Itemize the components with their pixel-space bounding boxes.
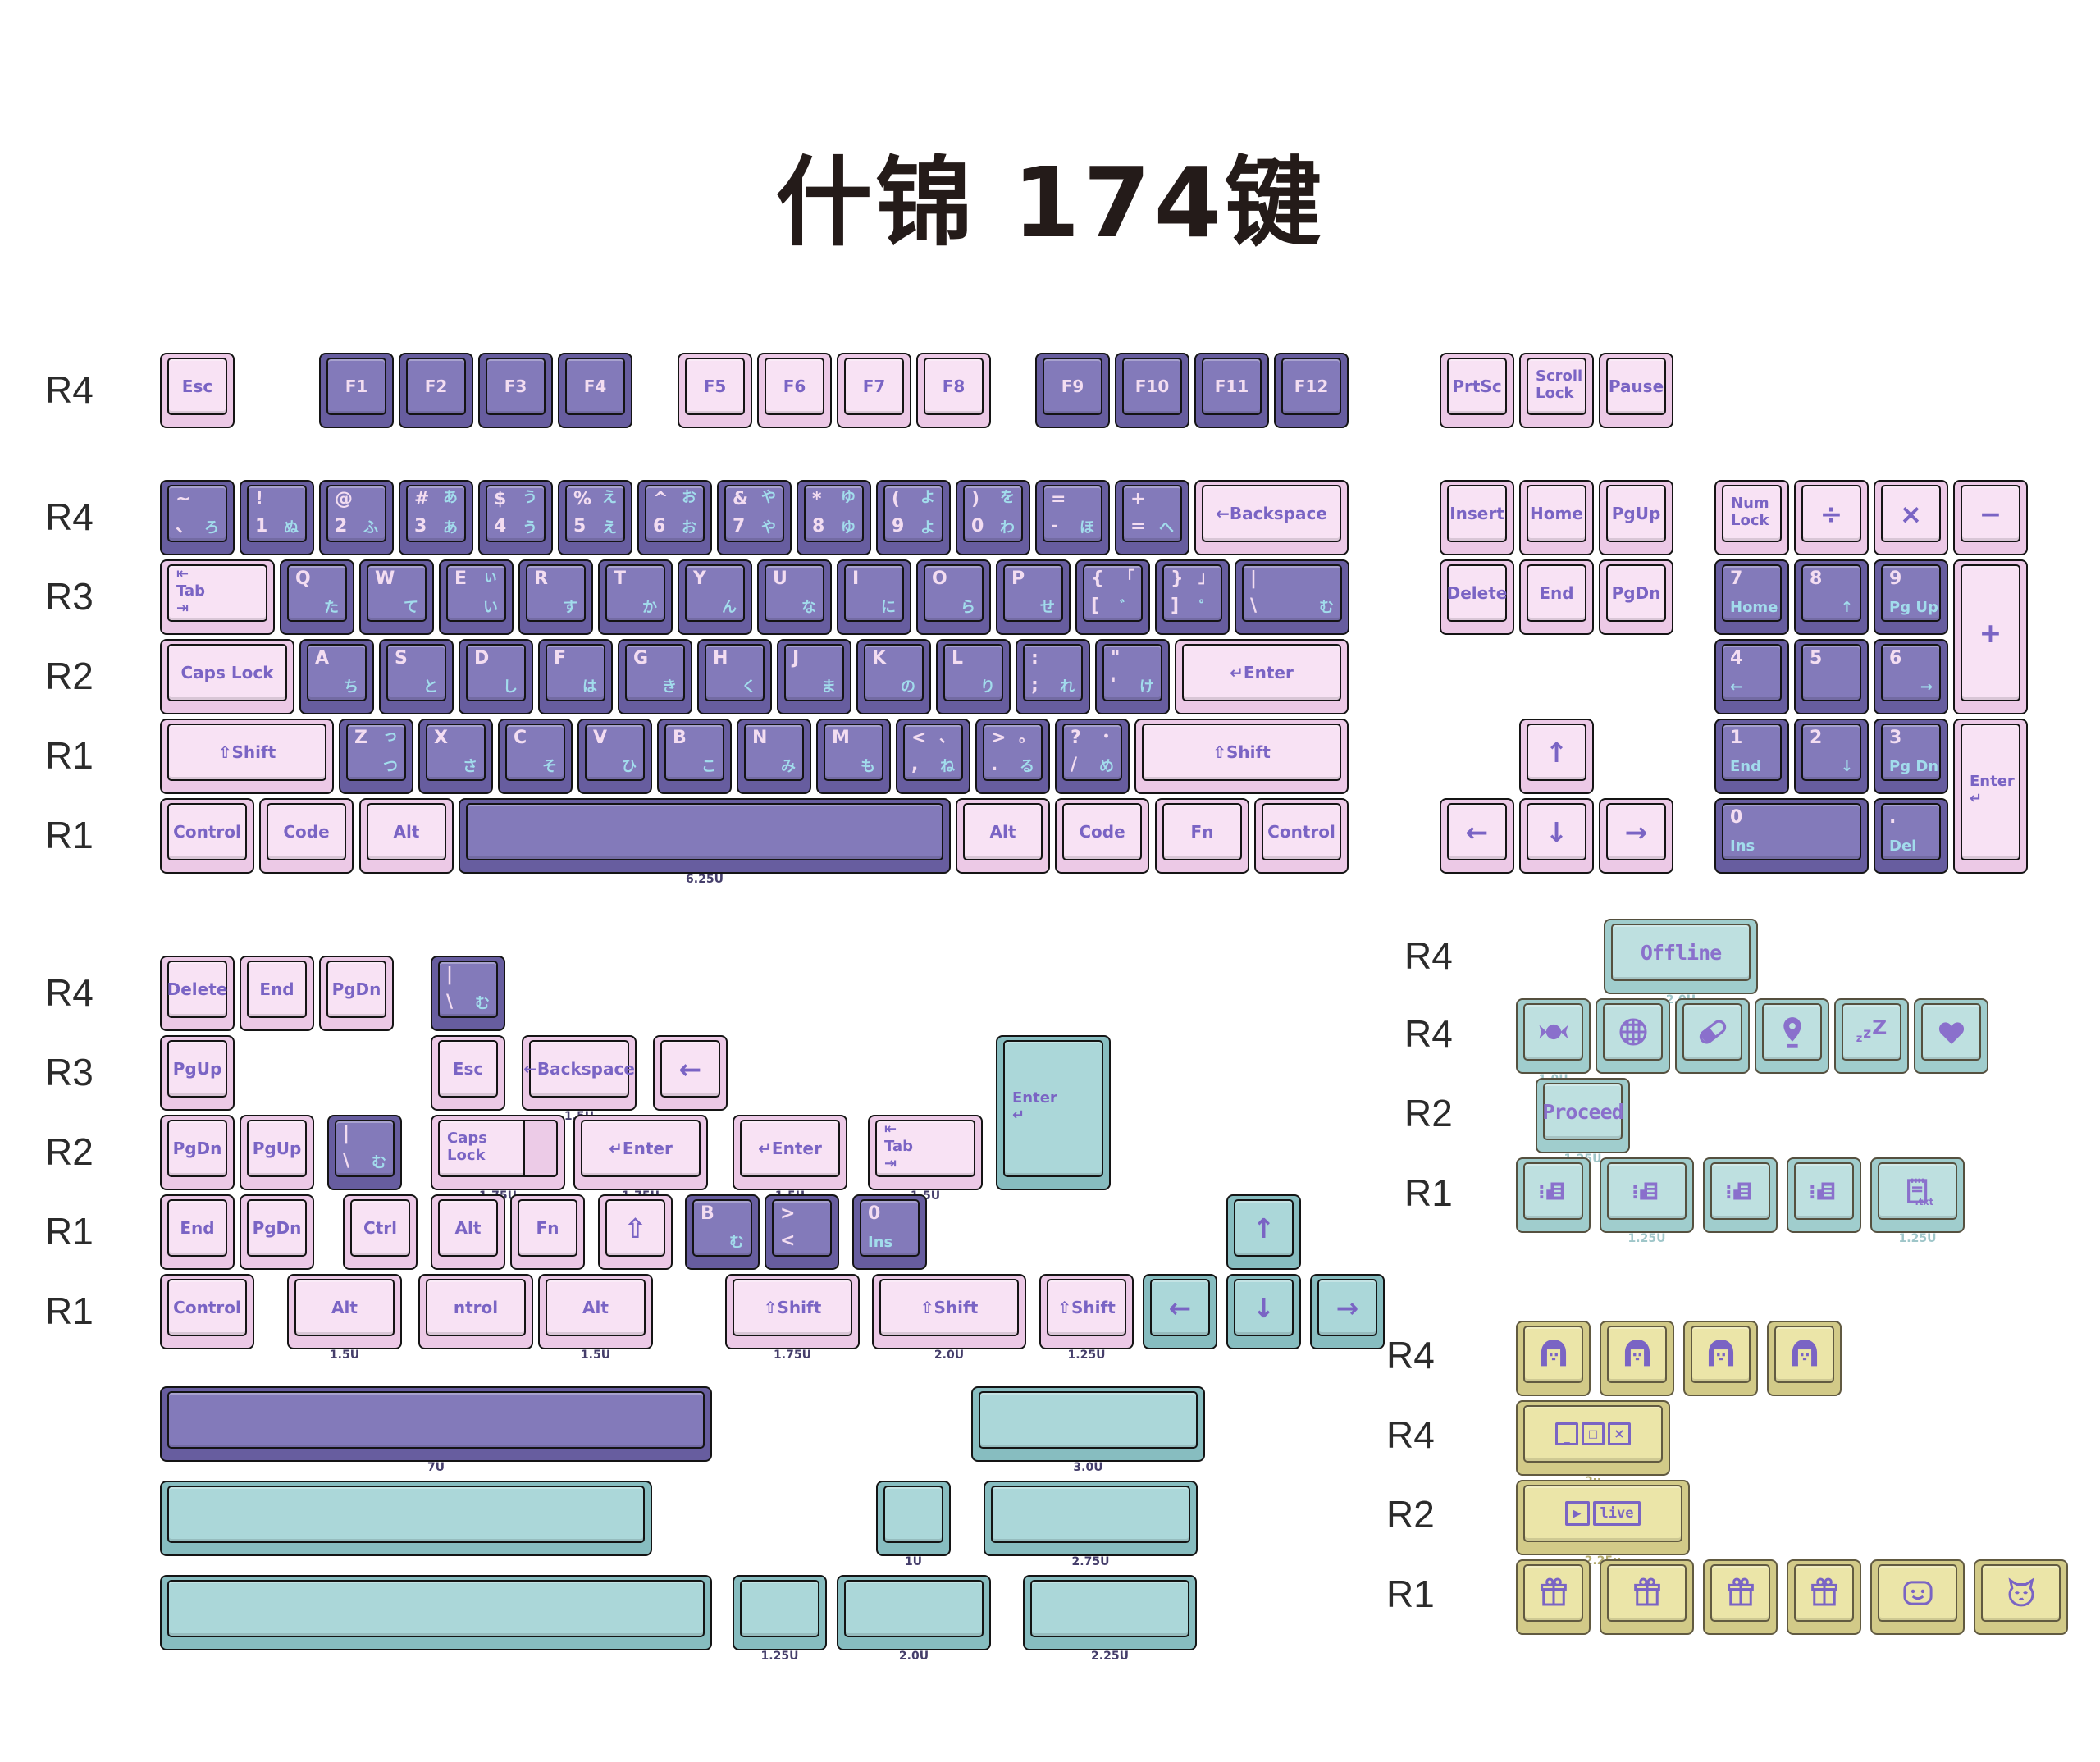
key-legend: 7: [1730, 570, 1742, 588]
key-legend: PgUp: [1608, 486, 1664, 541]
key-spacebar: 6.25U: [459, 798, 951, 874]
key-legend: Home: [1528, 486, 1585, 541]
key-4: $4うう: [478, 480, 553, 555]
key-legend: Ins: [868, 1235, 892, 1250]
key-3: #3ああ: [399, 480, 473, 555]
key-f9: F9: [1035, 353, 1110, 428]
row-label-r1: R1: [1404, 1171, 1453, 1215]
key-globe: [1596, 998, 1670, 1074]
key-legend: PgDn: [328, 962, 385, 1016]
key-legend: む: [729, 1235, 744, 1250]
key-legend: .: [991, 756, 997, 774]
key-lbracket: {「[゛: [1075, 559, 1150, 635]
printer-icon: [1609, 1164, 1685, 1218]
key-legend: Enter↵: [1970, 730, 2011, 851]
key-candy: 1.0U: [1516, 998, 1591, 1074]
key-legend: ⇧Shift: [169, 725, 325, 779]
key-numpad-6: 6→: [1874, 639, 1948, 714]
size-label: 2.25U: [1025, 1650, 1195, 1663]
key-legend: F: [554, 650, 566, 668]
key-legend: あ: [443, 521, 458, 536]
key-end-2: End: [240, 956, 314, 1031]
key-left-alt: Alt: [359, 798, 454, 874]
key-legend: Ins: [1730, 839, 1755, 854]
key-semicolon: :;れ: [1016, 639, 1090, 714]
key-blank-7u: [160, 1575, 712, 1650]
key-heart: [1914, 998, 1988, 1074]
key-legend: -: [1051, 518, 1058, 536]
key-legend: <: [911, 729, 926, 747]
key-legend: Enter↵: [1012, 1047, 1094, 1167]
key-legend: End: [1528, 566, 1585, 620]
row-label-r1: R1: [1386, 1572, 1435, 1616]
key-legend: End: [1730, 760, 1761, 774]
key-legend: も: [861, 760, 875, 774]
key-alt-1u: Alt: [431, 1194, 505, 1270]
key-legend: ぬ: [284, 521, 299, 536]
key-arrow-down: ↓: [1519, 798, 1594, 874]
key-legend: 2: [335, 518, 347, 536]
size-label: 1U: [878, 1555, 949, 1568]
girl-icon: [1692, 1327, 1749, 1381]
key-legend: Del: [1889, 839, 1916, 854]
key-legend: め: [1099, 760, 1114, 774]
key-legend: ま: [821, 680, 836, 695]
key-legend: Esc: [440, 1042, 496, 1096]
key-pipe-3: |\む: [327, 1115, 402, 1190]
key-p: Pせ: [996, 559, 1071, 635]
key-prtsc: PrtSc: [1440, 353, 1514, 428]
keycap-set-diagram: 什锦 174键 EscF1F2F3F4F5F6F7F8F9F10F11F12~、…: [0, 0, 2100, 1762]
key-legend: PrtSc: [1449, 359, 1505, 413]
key-legend: Code: [1064, 805, 1140, 859]
key-b: Bこ: [657, 719, 732, 794]
key-legend: ←Backspace: [531, 1042, 628, 1096]
key-legend: F12: [1283, 359, 1340, 413]
key-numpad-2: 2↓: [1794, 719, 1869, 794]
key-legend: ←: [1152, 1280, 1208, 1335]
key-legend: F9: [1044, 359, 1101, 413]
key-legend: 6: [653, 518, 665, 536]
key-legend: か: [642, 600, 657, 615]
key-legend: L: [952, 650, 963, 668]
key-enter: ↵Enter: [1175, 639, 1349, 714]
key-legend: る: [1020, 760, 1034, 774]
key-printer-3: [1703, 1157, 1778, 1233]
key-pgup-3: PgUp: [240, 1115, 314, 1190]
key-legend: !: [255, 491, 263, 509]
girl-icon: [1609, 1327, 1665, 1381]
row-label-r4: R4: [1386, 1333, 1435, 1377]
key-legend: T: [614, 570, 626, 588]
key-legend: Pause: [1608, 359, 1664, 413]
key-legend: ←: [1730, 680, 1742, 695]
key-legend: ⇧Shift: [881, 1280, 1017, 1335]
key-x: Xさ: [418, 719, 493, 794]
key-legend: ←: [662, 1042, 719, 1096]
key-legend: @: [335, 491, 353, 509]
key-a: Aち: [299, 639, 374, 714]
key-right-alt: Alt: [956, 798, 1050, 874]
page-title: 什锦 174键: [0, 124, 2100, 264]
key-legend: て: [404, 600, 418, 615]
row-label-r4: R4: [1404, 933, 1453, 978]
key-8: *8ゆゆ: [797, 480, 871, 555]
key-legend: Fn: [1164, 805, 1240, 859]
key-esc: Esc: [160, 353, 235, 428]
key-tab-15: ⇤Tab⇥1.5U: [868, 1115, 983, 1190]
key-legend: Control: [1263, 805, 1340, 859]
size-label: 1.5U: [540, 1349, 651, 1362]
key-arrow-left: ←: [1440, 798, 1514, 874]
key-legend: S: [395, 650, 408, 668]
key-pipe-2: |\む: [431, 956, 505, 1031]
key-legend: 。: [1019, 729, 1034, 745]
key-printer-2: 1.25U: [1600, 1157, 1694, 1233]
row-label-r1: R1: [45, 1209, 94, 1253]
key-minus: =-ほ: [1035, 480, 1110, 555]
key-legend: F7: [846, 359, 902, 413]
key-legend: O: [932, 570, 947, 588]
key-legend: F4: [567, 359, 623, 413]
key-legend: <: [780, 1232, 795, 1250]
key-legend: む: [372, 1156, 386, 1171]
key-m: Mも: [816, 719, 891, 794]
key-legend: け: [1139, 680, 1154, 695]
key-pipe: |\む: [1235, 559, 1349, 635]
key-legend: ⇧Shift: [1144, 725, 1340, 779]
key-f4: F4: [558, 353, 632, 428]
key-esc-2: Esc: [431, 1035, 505, 1111]
key-txt-note: .txt1.25U: [1870, 1157, 1965, 1233]
key-arrow-right: →: [1599, 798, 1673, 874]
key-girl-face-3: [1683, 1321, 1758, 1396]
key-legend: R: [534, 570, 548, 588]
key-legend: Alt: [296, 1280, 393, 1335]
key-legend: I: [852, 570, 859, 588]
key-left-shift: ⇧Shift: [160, 719, 334, 794]
key-legend: PgDn: [169, 1121, 226, 1175]
key-legend: F2: [408, 359, 464, 413]
key-legend: #: [414, 491, 429, 509]
key-1: !1ぬ: [240, 480, 314, 555]
key-g: Gき: [618, 639, 692, 714]
key-legend: う: [523, 521, 537, 536]
key-quote: "'け: [1095, 639, 1170, 714]
row-label-r4: R4: [45, 495, 94, 539]
key-legend: N: [752, 729, 767, 747]
key-left-arrow-2: ←: [653, 1035, 728, 1111]
key-c: Cそ: [498, 719, 573, 794]
size-label: 1.5U: [289, 1349, 400, 1362]
row-label-r2: R2: [45, 654, 94, 698]
key-legend: %: [573, 491, 591, 509]
key-legend: を: [1000, 491, 1015, 505]
key-pgup: PgUp: [1599, 480, 1673, 555]
key-legend: 1: [1730, 729, 1742, 747]
girl-icon: [1776, 1327, 1833, 1381]
key-shift-125: ⇧Shift1.25U: [1039, 1274, 1134, 1349]
key-pgdn: PgDn: [1599, 559, 1673, 635]
key-legend: PgDn: [249, 1201, 305, 1255]
row-label-r3: R3: [45, 1050, 94, 1094]
key-legend: .: [1889, 809, 1896, 827]
key-d: Dし: [459, 639, 533, 714]
key-legend: ↵Enter: [582, 1121, 699, 1175]
key-legend: ふ: [363, 521, 378, 536]
window-controls-icon: _□×: [1525, 1407, 1661, 1461]
key-legend: ね: [940, 760, 955, 774]
key-legend: =: [1051, 491, 1066, 509]
key-legend: Proceed: [1545, 1084, 1621, 1139]
key-legend: $: [494, 491, 506, 509]
key-blank-275u: 2.75U: [984, 1481, 1198, 1556]
printer-icon: [1712, 1164, 1769, 1218]
key-legend: 9: [892, 518, 904, 536]
candy-icon: [1525, 1005, 1582, 1059]
key-legend: ): [971, 491, 979, 509]
key-v: Vひ: [577, 719, 652, 794]
key-q: Qた: [280, 559, 354, 635]
key-numpad-plus: +: [1953, 559, 2028, 714]
key-f5: F5: [678, 353, 752, 428]
svg-text:.txt: .txt: [1915, 1196, 1933, 1207]
key-legend: ←Backspace: [1203, 486, 1340, 541]
row-label-r1: R1: [45, 1289, 94, 1333]
key-u: Uな: [757, 559, 832, 635]
key-legend: \: [1250, 597, 1257, 615]
key-j: Jま: [777, 639, 851, 714]
gift-icon: [1525, 1566, 1582, 1620]
key-legend: ^: [653, 491, 668, 509]
key-legend: ⇧Shift: [734, 1280, 851, 1335]
key-blank-225u: 2.25U: [1023, 1575, 1197, 1650]
key-blank-625u: [160, 1481, 652, 1556]
key-numpad-divide: ÷: [1794, 480, 1869, 555]
key-legend: M: [832, 729, 850, 747]
key-pill: [1675, 998, 1750, 1074]
key-legend: ほ: [1080, 521, 1094, 536]
key-caps-lock: Caps Lock: [160, 639, 294, 714]
key-legend: り: [980, 680, 995, 695]
printer-icon: [1525, 1164, 1582, 1218]
gift-icon: [1609, 1566, 1685, 1620]
row-label-r2: R2: [45, 1130, 94, 1174]
size-label: 2.0U: [838, 1650, 989, 1663]
key-enter-175: ↵Enter1.75U: [573, 1115, 708, 1190]
key-legend: ↑: [1235, 1201, 1292, 1255]
key-backspace-15: ←Backspace1.5U: [522, 1035, 637, 1111]
size-label: 1.75U: [727, 1349, 858, 1362]
key-legend: ゛: [1120, 600, 1134, 615]
size-label: 1.25U: [1601, 1232, 1692, 1245]
gift-icon: [1712, 1566, 1769, 1620]
key-legend: −: [1962, 486, 2019, 541]
key-legend: ・: [1098, 729, 1114, 745]
key-legend: →: [1319, 1280, 1376, 1335]
key-home: Home: [1519, 480, 1594, 555]
key-legend: し: [503, 680, 518, 695]
key-legend: と: [423, 680, 438, 695]
key-cat: [1974, 1559, 2068, 1635]
key-girl-face-1: [1516, 1321, 1591, 1396]
smiley-icon: [1879, 1566, 1956, 1620]
key-legend: よ: [920, 491, 935, 505]
key-legend: PgUp: [169, 1042, 226, 1096]
key-legend: お: [682, 521, 696, 536]
key-legend: |: [446, 966, 453, 984]
key-legend: F8: [925, 359, 982, 413]
key-legend: F6: [766, 359, 823, 413]
key-period: >。.る: [975, 719, 1050, 794]
key-lt-gt: ><: [765, 1194, 839, 1270]
key-girl-face-2: [1600, 1321, 1674, 1396]
key-shift-20: ⇧Shift2.0U: [872, 1274, 1026, 1349]
key-numpad-9: 9Pg Up: [1874, 559, 1948, 635]
key-e: Eぃい: [439, 559, 514, 635]
key-legend: ": [1111, 650, 1120, 668]
key-legend: Esc: [169, 359, 226, 413]
key-legend: く: [742, 680, 756, 695]
key-caps-stepped: CapsLock1.75U: [431, 1115, 565, 1190]
key-legend: B: [673, 729, 687, 747]
key-tab: ⇤Tab⇥: [160, 559, 275, 635]
key-legend: Fn: [519, 1201, 576, 1255]
size-label: 1.25U: [1872, 1232, 1963, 1245]
key-arrow-up: ↑: [1519, 719, 1594, 794]
key-delete: Delete: [1440, 559, 1514, 635]
key-legend: ⇤Tab⇥: [884, 1126, 966, 1167]
key-legend: 4: [494, 518, 506, 536]
key-gift-1: [1516, 1559, 1591, 1635]
key-legend: Control: [169, 805, 245, 859]
key-legend: ⇤Tab⇥: [176, 571, 258, 612]
key-fn: Fn: [1155, 798, 1249, 874]
key-legend: ぃ: [483, 570, 498, 585]
key-blank-1u: 1U: [876, 1481, 951, 1556]
key-num-lock: NumLock: [1714, 480, 1789, 555]
key-numpad-enter: Enter↵: [1953, 719, 2028, 874]
key-legend: 3: [414, 518, 427, 536]
size-label: 2.75U: [985, 1555, 1196, 1568]
key-legend: 8: [812, 518, 824, 536]
key-legend: す: [563, 600, 577, 615]
key-legend: 0: [971, 518, 984, 536]
key-f6: F6: [757, 353, 832, 428]
key-legend: D: [474, 650, 489, 668]
key-legend: Caps Lock: [169, 646, 285, 700]
key-backspace: ←Backspace: [1194, 480, 1349, 555]
key-legend: CapsLock: [447, 1126, 549, 1167]
key-legend: ×: [1883, 486, 1939, 541]
key-legend: 1: [255, 518, 267, 536]
key-legend: /: [1071, 756, 1077, 774]
key-legend: ⇧: [607, 1201, 664, 1255]
key-legend: ⇧Shift: [1048, 1280, 1125, 1335]
key-legend: む: [1319, 600, 1334, 615]
key-numpad-multiply: ×: [1874, 480, 1948, 555]
key-legend: →: [1920, 680, 1933, 695]
key-legend: 、: [176, 518, 194, 536]
key-legend: End: [169, 1201, 226, 1255]
row-label-r1: R1: [45, 813, 94, 857]
key-teal-arrow-up: ↑: [1226, 1194, 1301, 1270]
key-girl-face-4: [1767, 1321, 1842, 1396]
key-legend: (: [892, 491, 900, 509]
key-legend: Control: [169, 1280, 245, 1335]
key-teal-arrow-right: →: [1310, 1274, 1385, 1349]
key-k: Kの: [856, 639, 931, 714]
key-legend: &: [733, 491, 748, 509]
key-legend: 」: [1198, 570, 1214, 586]
key-legend: Delete: [169, 962, 226, 1016]
key-numpad-4: 4←: [1714, 639, 1789, 714]
key-right-control: Control: [1254, 798, 1349, 874]
key-legend: 0: [868, 1205, 880, 1223]
key-legend: G: [633, 650, 648, 668]
key-f7: F7: [837, 353, 911, 428]
row-label-r3: R3: [45, 574, 94, 619]
key-blank-3u: 3.0U: [971, 1386, 1205, 1462]
key-legend: }: [1171, 570, 1184, 588]
key-numpad-0: 0Ins: [1714, 798, 1869, 874]
key-legend: ]: [1171, 597, 1179, 615]
key-enter-15: ↵Enter1.5U: [733, 1115, 847, 1190]
globe-icon: [1605, 1005, 1661, 1059]
key-pause: Pause: [1599, 353, 1673, 428]
key-tilde: ~、ろ: [160, 480, 235, 555]
key-f11: F11: [1194, 353, 1269, 428]
key-legend: PgUp: [249, 1121, 305, 1175]
key-legend: ↵Enter: [742, 1121, 838, 1175]
key-legend: な: [801, 600, 816, 615]
key-legend: ~: [176, 491, 190, 509]
key-f3: F3: [478, 353, 553, 428]
key-pgup-2: PgUp: [160, 1035, 235, 1111]
key-legend: た: [324, 600, 339, 615]
key-legend: 0: [1730, 809, 1742, 827]
key-legend: ろ: [204, 521, 219, 536]
key-legend: 「: [1119, 570, 1134, 586]
key-w: Wて: [359, 559, 434, 635]
key-legend: Home: [1730, 600, 1778, 615]
key-smiley: [1870, 1559, 1965, 1635]
key-legend: ↓: [1528, 805, 1585, 859]
key-pgdn-2: PgDn: [319, 956, 394, 1031]
key-legend: Insert: [1449, 486, 1505, 541]
key-f10: F10: [1115, 353, 1189, 428]
key-iso-enter: Enter↵: [996, 1035, 1111, 1190]
key-sleep: zzZ: [1834, 998, 1909, 1074]
key-z: Zっつ: [339, 719, 413, 794]
key-legend: ち: [344, 680, 358, 695]
key-legend: ': [1111, 677, 1116, 695]
row-label-r4: R4: [45, 970, 94, 1015]
key-shift-blank: ⇧: [598, 1194, 673, 1270]
key-legend: C: [514, 729, 527, 747]
key-legend: に: [881, 600, 896, 615]
key-legend: F10: [1124, 359, 1180, 413]
key-legend: U: [773, 570, 787, 588]
key-delete-2: Delete: [160, 956, 235, 1031]
key-legend: Alt: [440, 1201, 496, 1255]
key-legend: X: [434, 729, 448, 747]
key-legend: [: [1091, 597, 1099, 615]
key-0: )0をわ: [956, 480, 1030, 555]
key-alt-15-a: Alt1.5U: [287, 1274, 402, 1349]
key-legend: F5: [687, 359, 743, 413]
heart-icon: [1923, 1005, 1979, 1059]
